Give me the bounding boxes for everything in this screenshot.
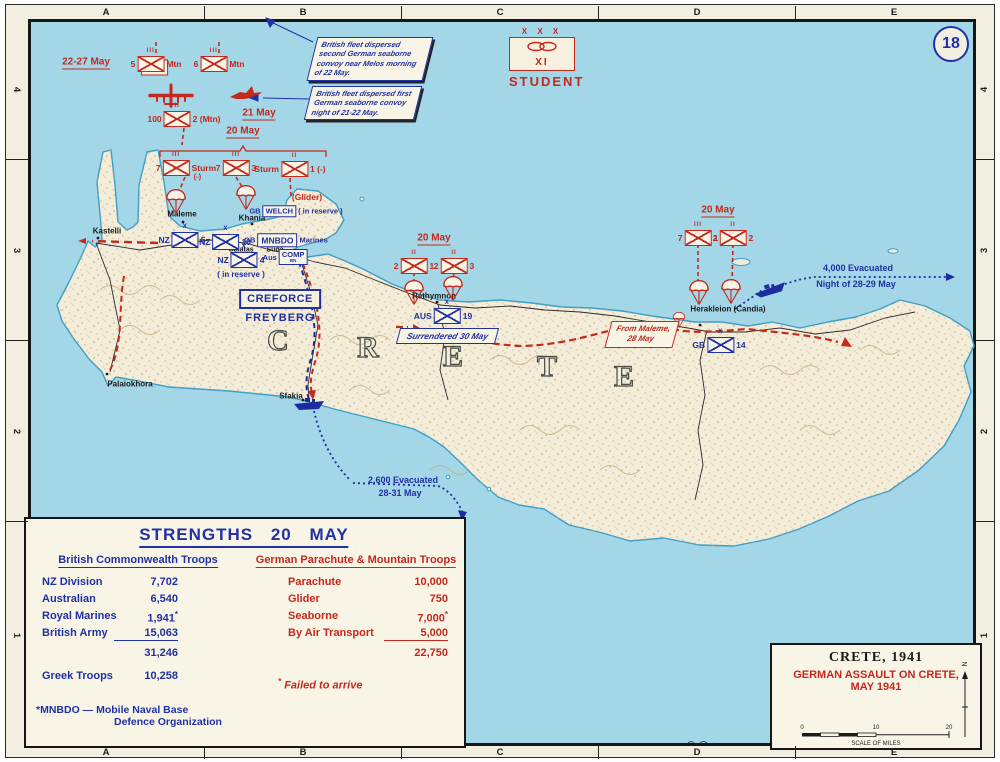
grid-label-c: C (402, 6, 599, 19)
north-arrow: N (960, 661, 968, 737)
total-value: 31,246 (114, 647, 178, 659)
grid-label-a: A (8, 746, 205, 759)
strengths-panel: STRENGTHS 20 MAY British Commonwealth Tr… (24, 517, 466, 748)
grid-strip-bottom: ABCDE (8, 746, 992, 759)
crete-terrain-stipple (57, 150, 974, 546)
grid-label-3: 3 (976, 160, 994, 341)
strengths-row-parachute: Parachute10,000 (288, 576, 341, 588)
strengths-row-british-army: British Army15,063 (42, 627, 108, 639)
strengths-row-by-air-transport: By Air Transport5,000 (288, 627, 374, 639)
row-label: British Army (42, 627, 108, 639)
grid-strip-left: 4321 (6, 19, 28, 746)
callout-text: British fleet dispersed second German se… (313, 40, 426, 78)
evacuation-route-herakleion-arrow (946, 273, 955, 281)
callout-second-convoy: British fleet dispersed second German se… (307, 37, 434, 81)
row-label: Royal Marines (42, 610, 117, 622)
row-value: 6,540 (114, 593, 178, 605)
grid-label-d: D (599, 6, 796, 19)
strengths-row-australian: Australian6,540 (42, 593, 96, 605)
row-value: 750 (384, 593, 448, 605)
airborne-glider-icon (525, 41, 559, 52)
grid-label-2: 2 (976, 341, 994, 522)
row-label: Australian (42, 593, 96, 605)
creforce-box: CREFORCE (239, 289, 321, 309)
strengths-row-royal-marines: Royal Marines1,941* (42, 610, 117, 622)
sheet-number: 18 (942, 35, 960, 53)
callout-first-convoy: British fleet dispersed first German sea… (304, 86, 423, 120)
row-label: By Air Transport (288, 627, 374, 639)
failed-to-arrive-footnote: * Failed to arrive (278, 677, 362, 692)
sheet-number-badge: 18 (933, 26, 969, 62)
row-value: 1,941* (114, 610, 178, 625)
grid-label-d: D (599, 746, 796, 759)
row-value: 15,063 (114, 627, 178, 641)
scale-and-north: 0 10 20 SCALE OF MILES N (772, 645, 980, 748)
grid-label-e: E (796, 6, 992, 19)
row-label: NZ Division (42, 576, 103, 588)
corps-echelon: X X X (509, 27, 575, 36)
grid-label-a: A (8, 6, 205, 19)
row-value: 7,000* (384, 610, 448, 625)
creforce-commander: FREYBERG (239, 312, 321, 324)
ship-icon-herakleion (753, 280, 787, 298)
row-value: 10,258 (114, 670, 178, 682)
xi-corps-symbol: X X X XI STUDENT (509, 27, 575, 89)
grid-label-1: 1 (6, 522, 28, 749)
mnbdo-footnote-line1: *MNBDO — Mobile Naval Base (36, 704, 188, 716)
strengths-row-glider: Glider750 (288, 593, 320, 605)
assault-bracket (160, 146, 326, 157)
transport-plane-icon (150, 85, 192, 106)
strengths-row-seaborne: Seaborne7,000* (288, 610, 338, 622)
creforce-headquarters: CREFORCE FREYBERG (239, 289, 321, 324)
scale-tick-10: 10 (873, 725, 880, 731)
grid-label-3: 3 (6, 160, 28, 341)
grid-label-1: 1 (976, 522, 994, 749)
map-title-box: CRETE, 1941 GERMAN ASSAULT ON CRETE, MAY… (770, 643, 982, 750)
corps-commander: STUDENT (509, 74, 575, 89)
airborne-corps-box: XI (509, 37, 575, 71)
row-label: Glider (288, 593, 320, 605)
scale-bar: 0 10 20 SCALE OF MILES (800, 725, 953, 747)
strengths-heading-german: German Parachute & Mountain Troops (256, 554, 456, 568)
grid-strip-right: 4321 (976, 19, 994, 746)
grid-label-c: C (402, 746, 599, 759)
grid-label-4: 4 (976, 19, 994, 160)
row-value: 5,000 (384, 627, 448, 641)
flag-surrendered: Surrendered 30 May (396, 328, 500, 344)
callout-arrow (250, 18, 313, 101)
grid-label-e: E (796, 746, 992, 759)
flag-from-maleme: From Maleme, 28 May (604, 321, 679, 348)
row-label: Seaborne (288, 610, 338, 622)
mnbdo-footnote-line2: Defence Organization (114, 716, 222, 728)
flag-from-maleme-line2: 28 May (626, 334, 655, 343)
footnote-text: Failed to arrive (284, 680, 362, 692)
flag-from-maleme-line1: From Maleme, (615, 324, 671, 333)
grid-label-b: B (205, 746, 402, 759)
corps-designation: XI (510, 57, 574, 68)
cartographer-signature (688, 742, 714, 745)
grid-label-b: B (205, 6, 402, 19)
strengths-title: STRENGTHS 20 MAY (139, 525, 348, 548)
grid-strip-top: ABCDE (8, 6, 992, 19)
north-letter: N (960, 661, 967, 666)
row-value: 7,702 (114, 576, 178, 588)
strengths-heading-british: British Commonwealth Troops (58, 554, 218, 568)
strengths-row-greek-troops: Greek Troops10,258 (42, 670, 113, 682)
strengths-row-nz-division: NZ Division7,702 (42, 576, 103, 588)
row-label: Greek Troops (42, 670, 113, 682)
map-sheet: ABCDE ABCDE 4321 4321 (0, 0, 1000, 762)
total-value: 22,750 (384, 647, 448, 659)
callout-text: British fleet dispersed first German sea… (310, 89, 415, 117)
scale-tick-20: 20 (946, 725, 953, 731)
grid-label-2: 2 (6, 341, 28, 522)
grid-label-4: 4 (6, 19, 28, 160)
row-label: Parachute (288, 576, 341, 588)
row-value: 10,000 (384, 576, 448, 588)
scale-tick-0: 0 (800, 725, 804, 731)
footnote-star: * (278, 677, 281, 686)
